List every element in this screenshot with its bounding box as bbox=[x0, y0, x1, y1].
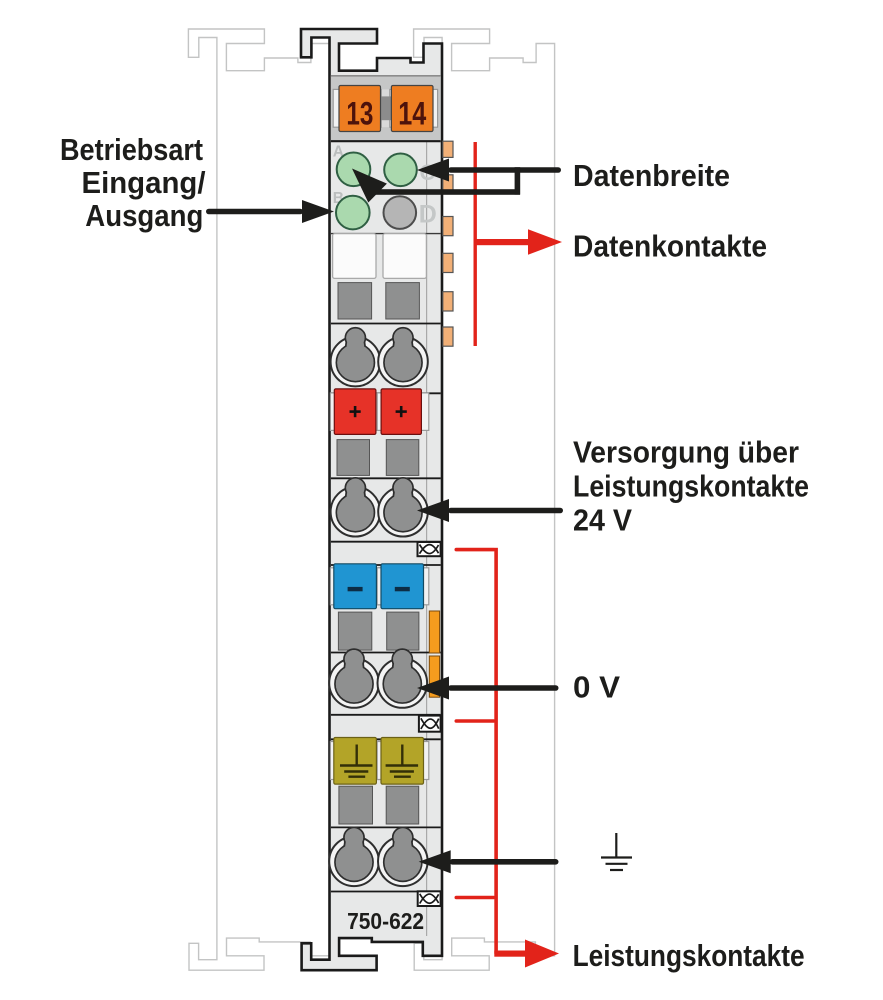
svg-text:24 V: 24 V bbox=[573, 503, 632, 538]
svg-text:D: D bbox=[419, 201, 437, 229]
svg-text:0 V: 0 V bbox=[573, 669, 620, 704]
svg-text:Leistungskontakte: Leistungskontakte bbox=[573, 469, 809, 504]
svg-text:Datenkontakte: Datenkontakte bbox=[573, 229, 767, 264]
svg-text:Eingang/: Eingang/ bbox=[82, 165, 206, 200]
svg-text:14: 14 bbox=[398, 95, 426, 131]
svg-text:Betriebsart: Betriebsart bbox=[60, 132, 203, 167]
svg-text:13: 13 bbox=[346, 95, 373, 131]
svg-text:Leistungskontakte: Leistungskontakte bbox=[573, 938, 805, 973]
svg-text:Ausgang: Ausgang bbox=[85, 198, 203, 233]
svg-text:750-622: 750-622 bbox=[347, 908, 424, 934]
svg-text:Versorgung über: Versorgung über bbox=[573, 435, 799, 470]
svg-text:Datenbreite: Datenbreite bbox=[573, 158, 730, 193]
